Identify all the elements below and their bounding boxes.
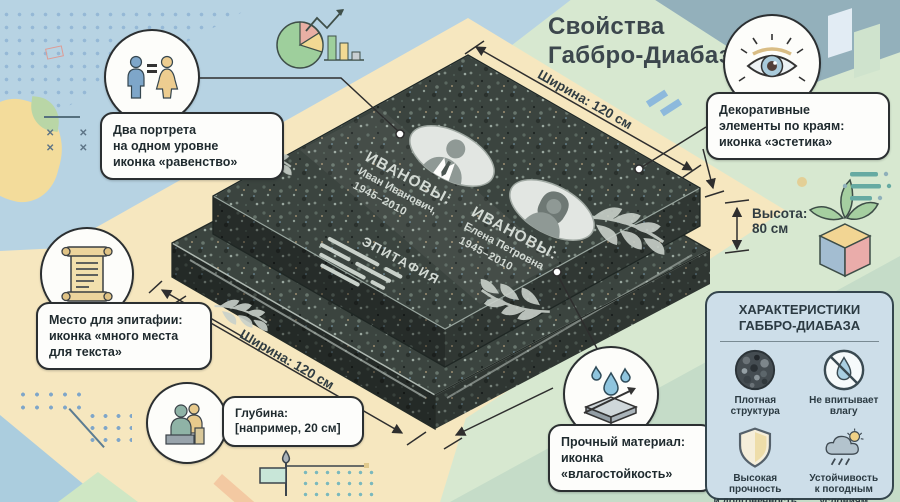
scroll-icon (59, 242, 115, 306)
height-label: Высота: 80 см (752, 206, 816, 236)
callout-epitaph: Место для эпитафии: иконка «много места … (36, 302, 212, 370)
no-moisture-icon (822, 348, 866, 392)
panel-caption: Устойчивость к погодным условиям (809, 473, 878, 502)
callout-material: Прочный материал: иконка «влагостойкость… (548, 424, 714, 492)
callout-decor: Декоративные элементы по краям: иконка «… (706, 92, 890, 160)
panel-caption: Не впитывает влагу (809, 395, 878, 418)
characteristics-panel: ХАРАКТЕРИСТИКИ ГАББРО-ДИАБАЗА Плотная ст… (705, 291, 894, 500)
panel-title: ХАРАКТЕРИСТИКИ ГАББРО-ДИАБАЗА (707, 302, 892, 335)
equality-icon (123, 54, 181, 100)
equality-icon-circle (104, 29, 200, 125)
shield-icon (734, 426, 776, 470)
dense-structure-icon (733, 348, 777, 392)
panel-caption: Высокая прочность и долговечность (714, 473, 797, 502)
panel-caption: Плотная структура (731, 395, 780, 418)
panel-item-strength: Высокая прочность и долговечность (711, 426, 800, 502)
depth-people-icon (161, 397, 213, 449)
water-repel-icon (578, 363, 644, 425)
panel-grid: Плотная структура Не впитывает влагу Выс… (707, 342, 892, 502)
weather-icon (821, 426, 867, 470)
panel-item-weather: Устойчивость к погодным условиям (800, 426, 889, 502)
callout-depth: Глубина: [например, 20 см] (222, 396, 364, 447)
infographic-canvas: ✕ ✕ ✕ ✕ (0, 0, 900, 502)
eye-icon (737, 32, 807, 94)
callout-portraits: Два портрета на одном уровне иконка «рав… (100, 112, 284, 180)
panel-item-dense: Плотная структура (711, 348, 800, 418)
panel-item-no-moisture: Не впитывает влагу (800, 348, 889, 418)
depth-icon-circle (146, 382, 228, 464)
